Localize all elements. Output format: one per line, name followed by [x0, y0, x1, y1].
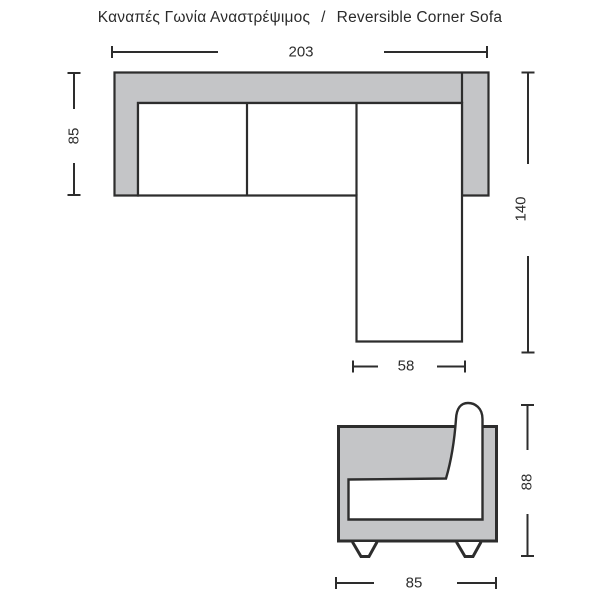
sofa-leg-left	[353, 542, 378, 557]
dim-label-top-width: 203	[288, 45, 313, 60]
dim-label-height: 88	[520, 474, 535, 491]
technical-drawing	[0, 0, 600, 600]
front-view	[339, 403, 497, 557]
dim-label-length: 140	[514, 196, 529, 221]
sofa-spec-sheet: Καναπές Γωνία Αναστρέψιμος / Reversible …	[0, 0, 600, 600]
sofa-leg-right	[457, 542, 482, 557]
dim-label-depth: 85	[67, 128, 82, 145]
seat-and-chaise-area	[138, 103, 462, 342]
dim-label-chaise-width: 58	[398, 359, 415, 374]
dim-label-front-width: 85	[406, 576, 423, 591]
top-view	[115, 73, 489, 342]
